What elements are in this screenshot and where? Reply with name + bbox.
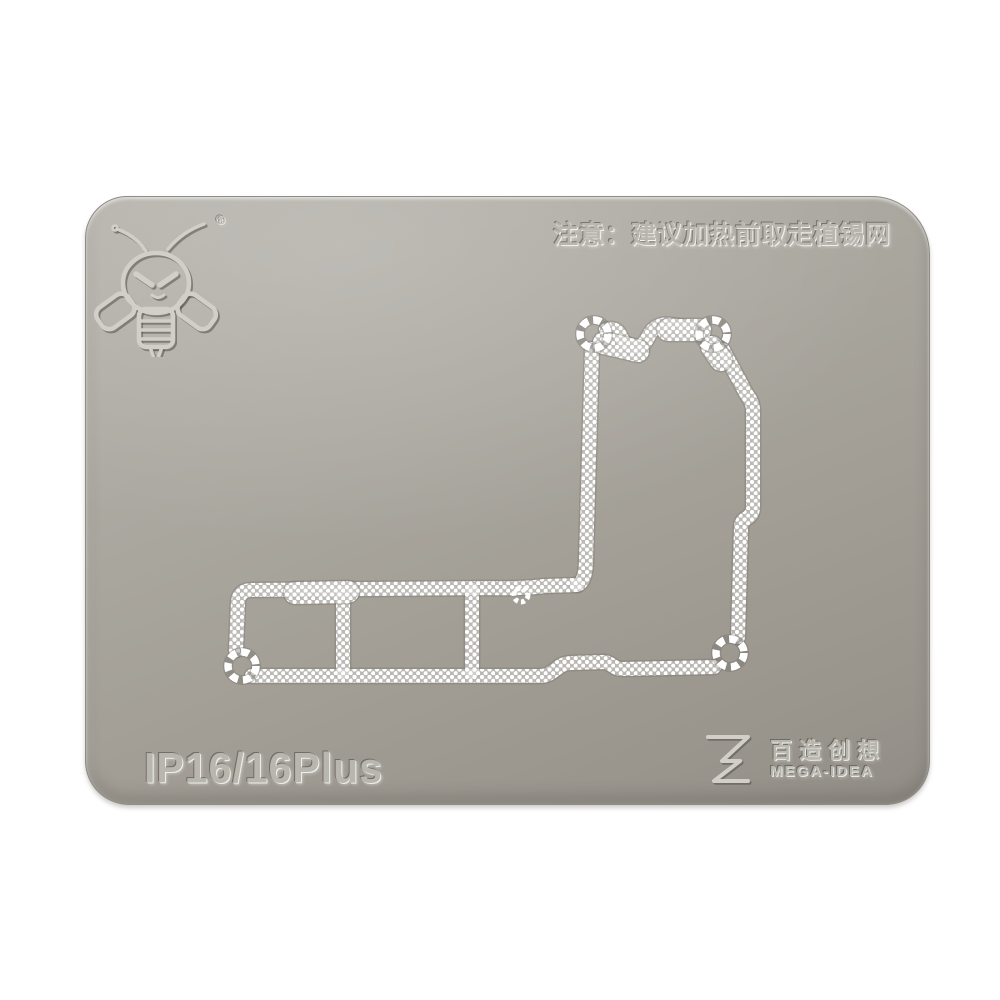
warning-text: 注意：建议加热前取走植锡网 xyxy=(553,215,891,251)
registered-mark: ® xyxy=(216,213,225,227)
hourglass-z-logo-icon xyxy=(700,731,756,787)
bee-icon xyxy=(90,207,240,357)
brand-block: 百造创想 MEGA-IDEA xyxy=(700,731,886,787)
brand-name-en: MEGA-IDEA xyxy=(770,763,886,780)
brand-name-cn: 百造创想 xyxy=(770,738,886,763)
stencil-plate: ® 注意：建议加热前取走植锡网 IP16/16Plus 百造创想 MEGA-ID… xyxy=(85,196,930,805)
bee-logo: ® xyxy=(90,207,240,357)
product-photo: ® 注意：建议加热前取走植锡网 IP16/16Plus 百造创想 MEGA-ID… xyxy=(0,0,1000,1000)
model-label: IP16/16Plus xyxy=(144,744,383,793)
